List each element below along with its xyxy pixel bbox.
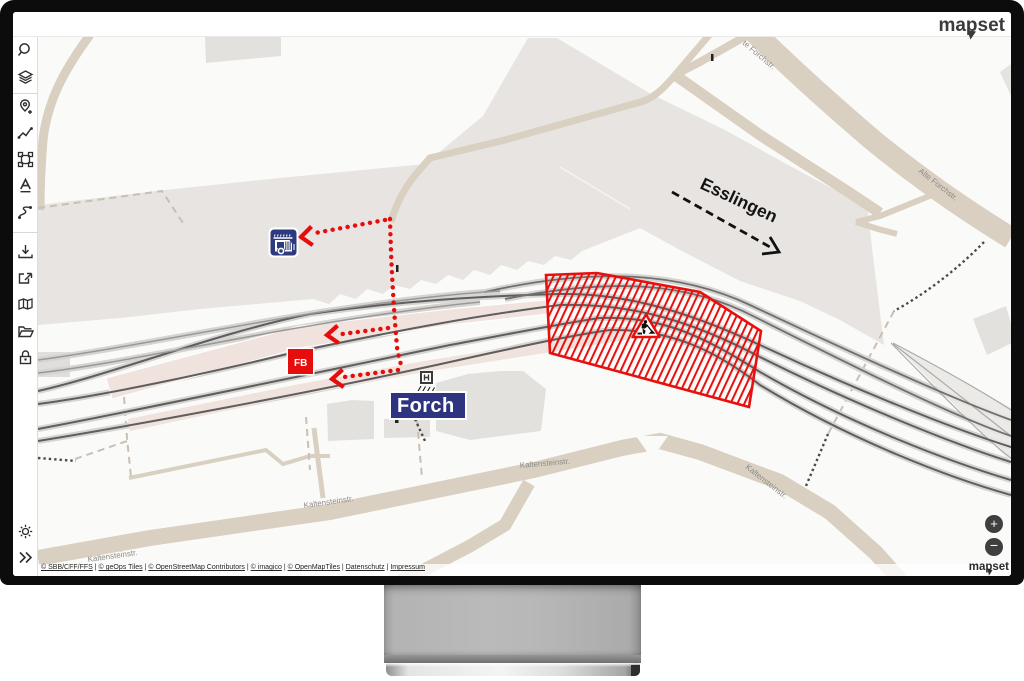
svg-text:Forch: Forch: [397, 395, 455, 417]
svg-text:FB: FB: [294, 358, 307, 369]
